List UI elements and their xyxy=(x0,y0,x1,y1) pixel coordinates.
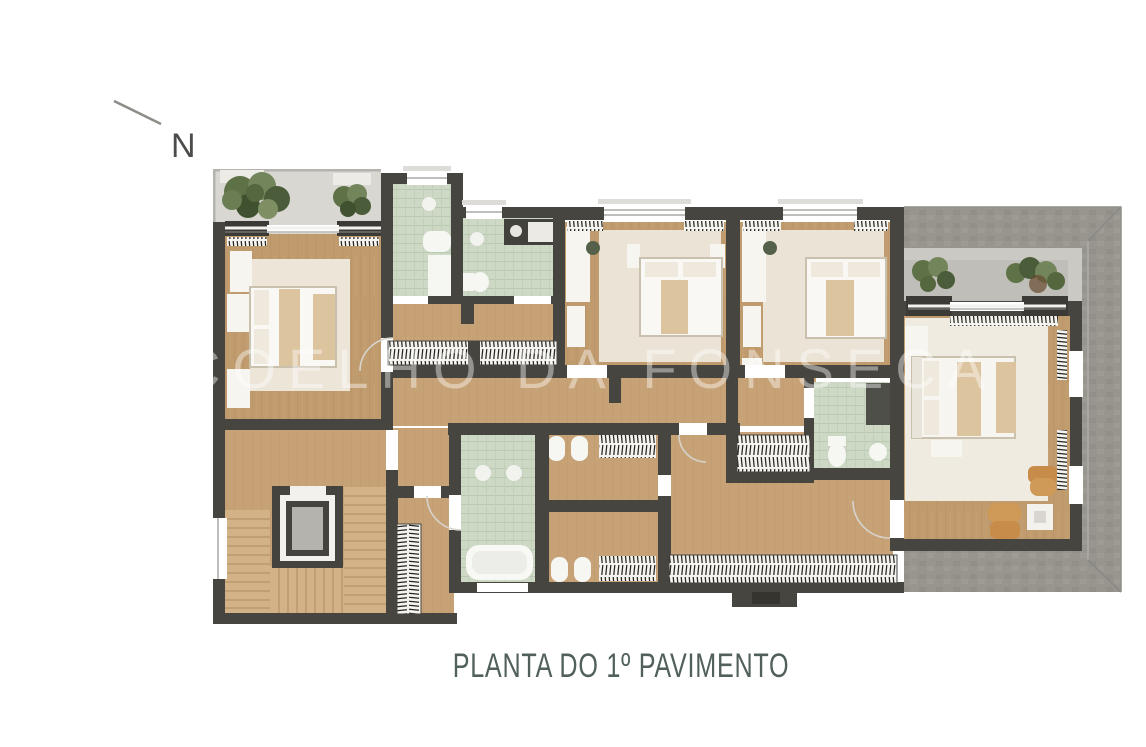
svg-text:PLANTA DO 1º PAVIMENTO: PLANTA DO 1º PAVIMENTO xyxy=(453,647,790,685)
svg-text:N: N xyxy=(171,127,196,165)
svg-text:COELHO DA FONSECA: COELHO DA FONSECA xyxy=(180,337,997,400)
